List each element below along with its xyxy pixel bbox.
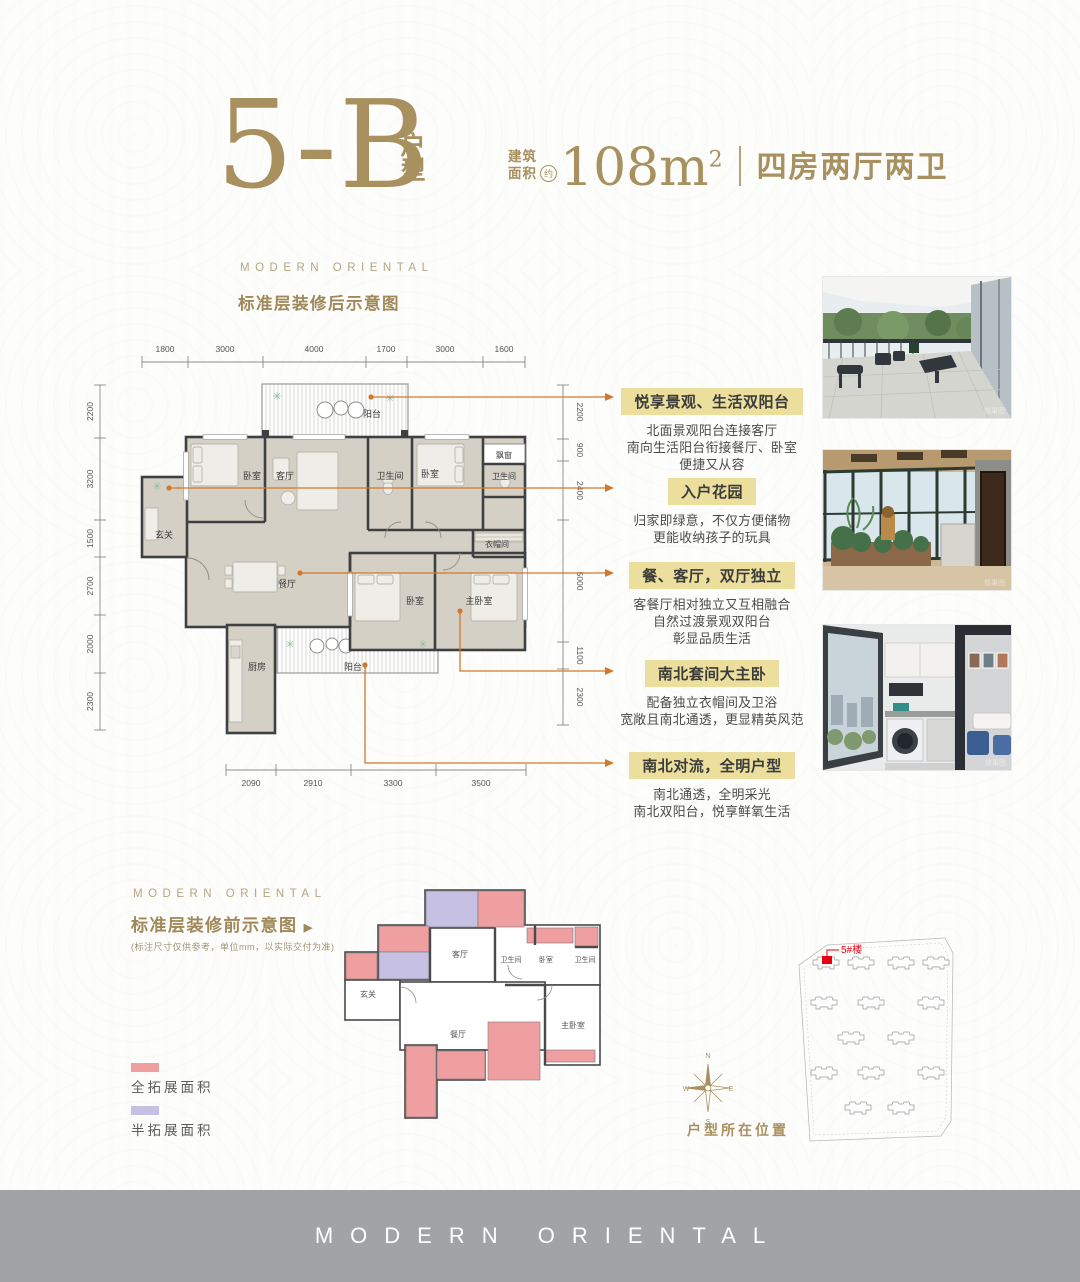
- svg-text:阳台: 阳台: [344, 661, 362, 672]
- photo-watermark: 效果图: [984, 406, 1005, 415]
- callout-title: 南北对流，全明户型: [629, 752, 795, 779]
- brand-after: MODERN ORIENTAL: [240, 262, 433, 274]
- callout-body: 配备独立衣帽间及卫浴宽敞且南北通透，更显精英风范: [608, 694, 816, 728]
- svg-text:1100: 1100: [575, 646, 585, 665]
- svg-text:3000: 3000: [436, 344, 455, 354]
- svg-text:900: 900: [575, 443, 585, 457]
- dim-labels-bottom: 2090 2910 3300 3500: [242, 778, 491, 788]
- entry-garden-photo: 效果图: [823, 450, 1011, 590]
- area-prefix-line1: 建筑: [508, 149, 537, 166]
- svg-text:✳: ✳: [418, 639, 427, 651]
- layout-desc: 四房两厅两卫: [757, 142, 949, 186]
- svg-text:餐厅: 餐厅: [278, 578, 296, 589]
- callout-title: 南北套间大主卧: [645, 660, 780, 687]
- svg-text:2300: 2300: [85, 692, 95, 711]
- callout-title: 餐、客厅，双厅独立: [629, 562, 795, 589]
- dim-labels-top: 1800 3000 4000 1700 3000 1600: [156, 344, 514, 354]
- svg-text:✳: ✳: [285, 639, 294, 651]
- site-plan: 5#楼: [785, 925, 965, 1155]
- svg-text:1700: 1700: [377, 344, 396, 354]
- photo-watermark: 效果图: [985, 758, 1006, 767]
- svg-text:厨房: 厨房: [248, 661, 266, 672]
- callout-body: 归家即绿意，不仅方便储物更能收纳孩子的玩具: [608, 512, 816, 546]
- legend-label-full: 全拓展面积: [131, 1076, 214, 1096]
- svg-text:卫生间: 卫生间: [575, 955, 596, 964]
- svg-text:卧室: 卧室: [539, 955, 553, 964]
- terrace-balcony-photo: 效果图: [823, 277, 1011, 418]
- before-floor-plan: 客厅 卫生间 卧室 卫生间 玄关 餐厅 主卧室: [340, 875, 660, 1135]
- triangle-right-icon: ▶: [304, 922, 314, 934]
- callout-master-suite: 南北套间大主卧 配备独立衣帽间及卫浴宽敞且南北通透，更显精英风范: [608, 660, 816, 728]
- dim-chain-top: [142, 356, 525, 368]
- callout-body: 北面景观阳台连接客厅南向生活阳台衔接餐厅、卧室便捷又从容: [608, 422, 816, 473]
- svg-text:主卧室: 主卧室: [465, 595, 492, 606]
- svg-text:1600: 1600: [495, 344, 514, 354]
- legend-swatch-half: [131, 1106, 159, 1115]
- footer-brand: MODERN ORIENTAL: [298, 1223, 782, 1249]
- svg-text:玄关: 玄关: [155, 529, 173, 540]
- brand-before: MODERN ORIENTAL: [133, 888, 326, 900]
- svg-text:卫生间: 卫生间: [492, 471, 516, 481]
- svg-text:2400: 2400: [575, 481, 585, 500]
- callout-bright-layout: 南北对流，全明户型 南北通透，全明采光南北双阳台，悦享鲜氧生活: [608, 752, 816, 820]
- svg-text:3200: 3200: [85, 469, 95, 488]
- legend-swatch-full: [131, 1063, 159, 1072]
- unit-type-label: 户型: [399, 132, 427, 182]
- svg-text:2700: 2700: [85, 576, 95, 595]
- svg-text:卧室: 卧室: [406, 595, 424, 606]
- divider: [739, 146, 741, 186]
- callout-dual-balcony: 悦享景观、生活双阳台 北面景观阳台连接客厅南向生活阳台衔接餐厅、卧室便捷又从容: [608, 388, 816, 473]
- svg-text:餐厅: 餐厅: [450, 1030, 466, 1039]
- area-value: 108m2: [560, 145, 723, 192]
- dimension-note: (标注尺寸仅供参考，单位mm，以实际交付为准): [131, 940, 335, 953]
- poster: 5-B 户型 建筑 面积 约 108m2 四房两厅两卫 MODERN ORIEN…: [0, 0, 1080, 1282]
- svg-text:卧室: 卧室: [243, 470, 261, 481]
- svg-text:N: N: [705, 1053, 710, 1060]
- svg-text:2910: 2910: [304, 778, 323, 788]
- svg-text:飘窗: 飘窗: [496, 450, 512, 460]
- before-plan-title: 标准层装修前示意图 ▶: [131, 911, 314, 936]
- svg-text:客厅: 客厅: [276, 470, 294, 481]
- dim-chain-bottom: [226, 764, 526, 776]
- building-label: 5#楼: [841, 943, 862, 956]
- svg-text:3000: 3000: [216, 344, 235, 354]
- svg-text:4000: 4000: [305, 344, 324, 354]
- svg-text:3500: 3500: [472, 778, 491, 788]
- dim-labels-right: 2200 900 2400 5000 1100 2300: [575, 403, 585, 707]
- callout-entry-garden: 入户花园 归家即绿意，不仅方便储物更能收纳孩子的玩具: [608, 478, 816, 546]
- after-plan-title: 标准层装修后示意图: [238, 290, 400, 314]
- callout-body: 南北通透，全明采光南北双阳台，悦享鲜氧生活: [608, 786, 816, 820]
- svg-text:5000: 5000: [575, 572, 585, 591]
- callout-title: 入户花园: [668, 478, 756, 505]
- svg-text:卧室: 卧室: [421, 468, 439, 479]
- svg-text:衣帽间: 衣帽间: [485, 539, 509, 549]
- main-floor-plan: 1800 3000 4000 1700 3000 1600 2200 3200 …: [85, 340, 620, 800]
- dim-labels-left: 2200 3200 1500 2700 2000 2300: [85, 402, 95, 711]
- svg-text:E: E: [729, 1086, 734, 1093]
- callout-body: 客餐厅相对独立又互相融合自然过渡景观双阳台彰显品质生活: [608, 596, 816, 647]
- svg-text:卫生间: 卫生间: [376, 470, 403, 481]
- approx-badge: 约: [540, 165, 557, 182]
- laundry-balcony-photo: 效果图: [823, 625, 1011, 770]
- svg-text:W: W: [683, 1086, 690, 1093]
- svg-text:阳台: 阳台: [363, 408, 381, 419]
- legend-label-half: 半拓展面积: [131, 1119, 214, 1139]
- area-sup: 2: [709, 148, 723, 173]
- area-prefix: 建筑 面积: [508, 149, 537, 183]
- site-buildings: [811, 957, 949, 1114]
- svg-text:✳: ✳: [152, 481, 161, 493]
- photo-watermark: 效果图: [984, 578, 1005, 587]
- svg-text:✳: ✳: [272, 391, 281, 403]
- svg-text:2090: 2090: [242, 778, 261, 788]
- dim-chain-right: [557, 385, 569, 725]
- svg-text:客厅: 客厅: [452, 949, 468, 959]
- svg-text:卫生间: 卫生间: [501, 955, 522, 964]
- dim-chain-left: [94, 385, 106, 730]
- svg-text:✳: ✳: [385, 393, 394, 405]
- svg-text:2200: 2200: [85, 402, 95, 421]
- svg-text:2200: 2200: [575, 403, 585, 422]
- svg-text:2000: 2000: [85, 634, 95, 653]
- footer-bar: MODERN ORIENTAL: [0, 1190, 1080, 1282]
- svg-text:1500: 1500: [85, 529, 95, 548]
- area-info: 建筑 面积 约 108m2 四房两厅两卫: [508, 142, 949, 192]
- svg-text:主卧室: 主卧室: [561, 1020, 585, 1030]
- compass-icon: N S W E: [682, 1048, 734, 1128]
- svg-text:2300: 2300: [575, 688, 585, 707]
- svg-text:玄关: 玄关: [360, 989, 376, 999]
- area-prefix-line2: 面积: [508, 166, 537, 183]
- callout-title: 悦享景观、生活双阳台: [621, 388, 802, 415]
- svg-text:3300: 3300: [384, 778, 403, 788]
- site-caption: 户型所在位置: [687, 1120, 789, 1140]
- callout-dual-hall: 餐、客厅，双厅独立 客餐厅相对独立又互相融合自然过渡景观双阳台彰显品质生活: [608, 562, 816, 647]
- svg-text:1800: 1800: [156, 344, 175, 354]
